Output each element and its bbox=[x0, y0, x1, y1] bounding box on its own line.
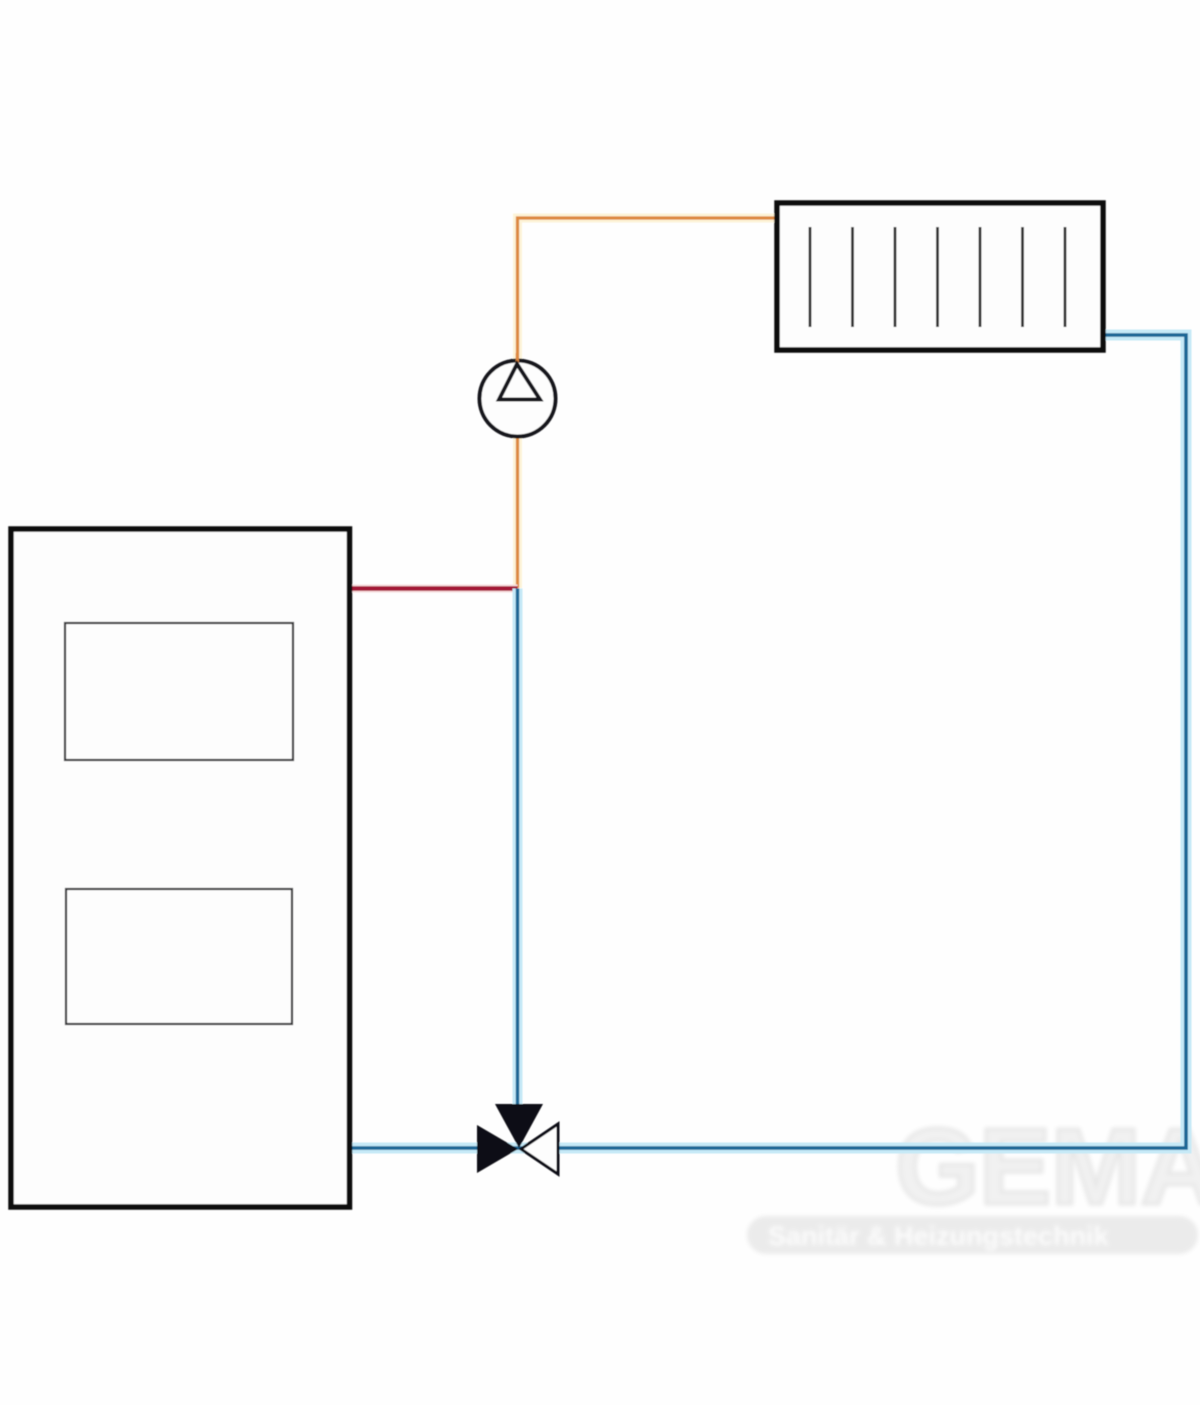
svg-text:GEMA: GEMA bbox=[895, 1106, 1200, 1228]
svg-text:Sanitär & Heizungstechnik: Sanitär & Heizungstechnik bbox=[768, 1221, 1110, 1251]
